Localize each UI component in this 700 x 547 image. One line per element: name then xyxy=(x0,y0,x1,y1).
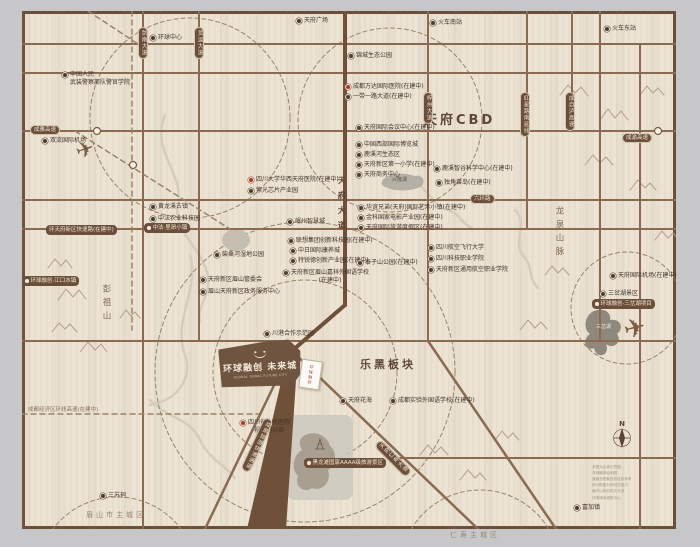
mtn-pengzushan: 彭祖山 xyxy=(100,284,111,325)
poi-east-railway-station: 火车东站 xyxy=(604,25,636,33)
poi-meishan-service-center: 眉山天府新区政务服务中心 xyxy=(200,288,280,296)
poi-marker-icon xyxy=(356,172,362,178)
poi-marker-icon xyxy=(574,505,580,511)
poi-west-expo-city: 中国西部国际博览城 xyxy=(356,141,418,149)
poi-marker-icon xyxy=(340,398,346,404)
pill-sixth-ring-road: 六环路 xyxy=(470,194,495,204)
poi-fujia-town: 富加镇 xyxy=(574,504,600,512)
poi-marker-icon xyxy=(430,20,436,26)
poi-sancha-lake-scenic: 三岔湖景区 xyxy=(600,290,638,298)
mtn-longquan-range: 龙泉山脉 xyxy=(553,206,564,260)
poi-unicorn-island: 独角兽岛(在建中) xyxy=(436,179,491,187)
badge-dot-icon xyxy=(595,302,599,306)
poi-marker-icon xyxy=(214,252,220,258)
poi-unis-chip-park: 紫光芯片产业园 xyxy=(248,187,298,195)
poi-marker-icon xyxy=(287,219,293,225)
poi-marker-icon xyxy=(100,493,106,499)
poi-marker-icon xyxy=(283,270,289,276)
smiley-mouth-icon xyxy=(253,351,266,358)
pill-hongxing-road: 红星路南延线 xyxy=(520,92,530,137)
poi-sansu-shrine: 三苏祠 xyxy=(100,492,126,500)
location-map: 天府广场火车南站火车东站环球中心锦城生态公园中国人民武装警察部队警官学院双流国际… xyxy=(0,0,700,547)
poi-marker-icon xyxy=(436,180,442,186)
compass-icon: N xyxy=(612,420,632,448)
poi-huaxi-tianfu-hospital: 四川大学华西天府医院(在建中) xyxy=(248,176,339,184)
poi-marker-icon xyxy=(358,215,364,221)
poi-minzhou-smart-city: 岷州智慧城 xyxy=(287,218,325,226)
poi-marker-icon xyxy=(290,248,296,254)
poi-chaisang-wetland-park: 柴桑河湿地公园 xyxy=(214,251,264,259)
poi-marker-icon xyxy=(356,152,362,158)
poi-aviation-university: 四川航空飞行大学 xyxy=(428,244,484,252)
poi-jincheng-eco-park: 锦城生态公园 xyxy=(348,52,392,60)
poi-luxi-river-eco: 鹿溪河生态区 xyxy=(356,151,400,159)
zone-meishan-city: 眉山市主城区 xyxy=(86,511,146,520)
poi-marker-icon xyxy=(296,18,302,24)
project-flag-marker: 环球融创 xyxy=(298,359,323,391)
poi-tianfu-resort: 天府国际旅游度假区(在建中) xyxy=(358,224,443,232)
badge-ring-tianfu-expressway: 环天府新区快速路(在建中) xyxy=(46,225,117,235)
poi-film-industry-park: 金科国家电影产业园(在建中) xyxy=(358,214,443,222)
poi-tianfu-flower-sea: 天府花海 xyxy=(340,397,372,405)
poi-shuangliu-airport: 双流国际机场 xyxy=(42,137,86,145)
poi-tianfu-intl-airport: 天府国际机场(在建中) xyxy=(610,272,677,280)
poi-marker-icon xyxy=(357,260,363,266)
pill-huoyun-avenue: 货运大道 xyxy=(194,27,204,59)
poi-marker-icon xyxy=(200,277,206,283)
poi-marker-icon xyxy=(150,216,156,222)
poi-marker-icon xyxy=(288,238,294,244)
poi-armed-police-academy: 中国人民武装警察部队警官学院 xyxy=(62,71,130,87)
poi-marker-icon xyxy=(390,398,396,404)
area-tianfu-cbd: 天府CBD xyxy=(424,113,495,130)
poi-first-primary-school: 天府新区第一小学(在建中) xyxy=(356,161,435,169)
poi-marker-icon xyxy=(358,205,364,211)
poi-general-aviation-college: 天府新区通用航空职业学院 xyxy=(428,266,508,274)
road-ring-econ-expressway: 成都经济区环线高速(在建中) xyxy=(28,407,98,414)
poi-marker-icon xyxy=(434,166,440,172)
poi-marker-icon xyxy=(356,125,362,131)
poi-marker-icon xyxy=(604,26,610,32)
poi-marker-icon xyxy=(348,53,354,59)
disclaimer-line: 详情请询销售中心 xyxy=(592,495,670,501)
badge-dot-icon xyxy=(307,461,311,465)
poi-marker-icon xyxy=(428,245,434,251)
poi-marker-icon xyxy=(610,273,616,279)
poi-marker-icon xyxy=(248,188,254,194)
badge-sino-french-town: 中法·里昂小镇 xyxy=(144,223,190,233)
poi-global-center: 环球中心 xyxy=(150,34,182,42)
poi-wanda-hospital: 成都万达国际医院(在建中) xyxy=(345,83,424,91)
poi-taizishan-park: 泰子山公园(在建中) xyxy=(357,259,418,267)
badge-dot-icon xyxy=(25,279,29,283)
pill-jiannan-avenue: 剑南大道 xyxy=(138,27,148,59)
road-tianfu-avenue: 天府大道 xyxy=(336,176,346,236)
poi-meishan-committee: 天府新区眉山管委会 xyxy=(200,276,262,284)
poi-scitech-college: 四川科技职业学院 xyxy=(428,255,484,263)
pill-chengyu-expressway: 成渝高速 xyxy=(622,133,652,143)
poi-shiwai-school: 成都实验外国语学校(在建中) xyxy=(390,397,475,405)
poi-marker-icon xyxy=(200,289,206,295)
poi-tianfu-square: 天府广场 xyxy=(296,17,328,25)
poi-luxi-science-center: 鹿溪智谷科学中心(在建中) xyxy=(434,165,513,173)
poi-marker-icon xyxy=(356,142,362,148)
badge-jiangkou-water-town: 环球融创·江口水镇 xyxy=(22,276,79,286)
poi-lenovo-tech-park: 联想集团创新科技园(在建中) xyxy=(288,237,373,245)
poi-tianfu-conference-center: 天府国际会议中心(在建中) xyxy=(356,124,435,132)
map-disclaimer-text: 本图为区域示意图非精确测绘地图道路及配套信息仅供参考部分配套为规划在建中最终以政… xyxy=(592,464,670,501)
poi-marker-icon xyxy=(345,94,351,100)
poi-marker-icon xyxy=(42,138,48,144)
poi-south-railway-station: 火车南站 xyxy=(430,19,462,27)
compass-north-label: N xyxy=(619,420,625,428)
pill-chengzilu-expressway: 成自泸高速 xyxy=(565,92,575,131)
poi-huanglongxi-town: 黄龙溪古镇 xyxy=(150,203,188,211)
zone-renshou-city: 仁寿主城区 xyxy=(450,531,500,540)
area-lehei-block: 乐黑板块 xyxy=(360,358,416,372)
poi-marker-icon xyxy=(600,291,606,297)
poi-marker-icon xyxy=(345,84,351,90)
label-xinglong-lake: 兴隆湖 xyxy=(392,177,407,184)
poi-chuangang-demo-park: 川港合作示范园 xyxy=(264,330,314,338)
poi-jiaxiang-school: 天府新区眉山嘉祥外国语学校(在建中) xyxy=(283,269,369,285)
poi-marker-icon xyxy=(264,331,270,337)
poi-marker-icon xyxy=(150,35,156,41)
poi-belt-road-avenue: 一带一路大道(在建中) xyxy=(345,93,412,101)
poi-marker-icon xyxy=(428,267,434,273)
poi-marker-icon xyxy=(240,420,246,426)
poi-marker-icon xyxy=(248,177,254,183)
poi-marker-icon xyxy=(358,225,364,231)
poi-sino-japan-wellness-city: 中日国际康养城 xyxy=(290,247,340,255)
badge-dot-icon xyxy=(147,226,151,230)
label-sancha-lake: 三岔湖 xyxy=(596,324,611,331)
poi-marker-icon xyxy=(150,204,156,210)
badge-sancha-lake-project: 环球融创·三岔湖项目 xyxy=(592,299,655,309)
pill-zizhou-avenue: 梓州大道 xyxy=(423,92,433,124)
badge-heilongtan-scenic: 黑龙滩国家AAAA级旅游景区 xyxy=(304,458,386,468)
poi-marker-icon xyxy=(290,258,296,264)
pill-chengya-expressway: 成雅高速 xyxy=(30,125,60,135)
poi-marker-icon xyxy=(356,162,362,168)
poi-marker-icon xyxy=(62,72,68,78)
poi-huayi-art-town: 华谊兄弟(天府)国际艺术小镇(在建中) xyxy=(358,204,465,212)
compass-needle-icon xyxy=(612,428,632,448)
flag-text: 环球融创 xyxy=(306,364,315,385)
poi-marker-icon xyxy=(428,256,434,262)
poi-sino-french-agri-park: 中法农业科技园 xyxy=(150,215,200,223)
